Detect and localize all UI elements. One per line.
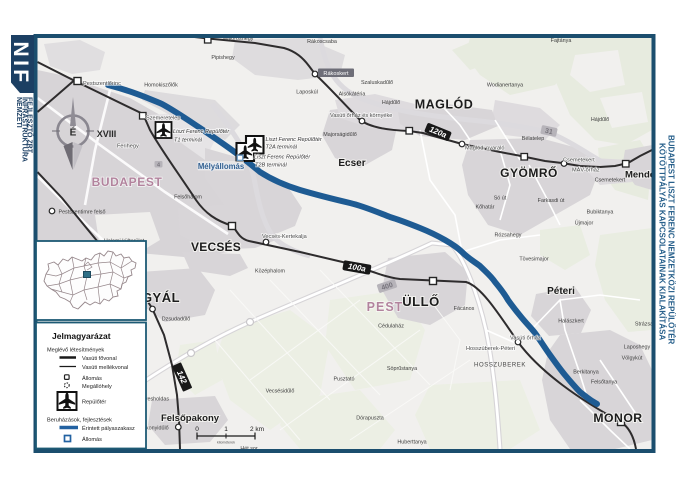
- svg-text:MÁV-őrház: MÁV-őrház: [572, 167, 600, 174]
- svg-text:Középhalom: Középhalom: [255, 269, 285, 275]
- svg-text:Só út: Só út: [494, 196, 507, 202]
- svg-text:Pusztató: Pusztató: [334, 377, 355, 383]
- svg-text:Repülőtér: Repülőtér: [82, 400, 106, 406]
- svg-text:HOSSZUBEREK: HOSSZUBEREK: [474, 363, 526, 369]
- svg-text:Csemetekert: Csemetekert: [595, 178, 626, 184]
- svg-text:Bélatelep: Bélatelep: [522, 136, 544, 142]
- svg-text:Pestszentlőrinc: Pestszentlőrinc: [83, 81, 121, 87]
- svg-text:Kőhatár: Kőhatár: [476, 205, 495, 211]
- svg-text:Felsőpakony: Felsőpakony: [161, 413, 220, 424]
- svg-text:Bubiktanya: Bubiktanya: [587, 210, 614, 216]
- svg-text:Wodianertanya: Wodianertanya: [487, 83, 523, 89]
- svg-text:Laposhegy: Laposhegy: [624, 345, 651, 351]
- svg-text:2 km: 2 km: [250, 426, 264, 433]
- svg-text:Mélyállomás: Mélyállomás: [198, 162, 245, 171]
- svg-text:FEJLESZTŐ ZRT.: FEJLESZTŐ ZRT.: [26, 97, 35, 154]
- svg-text:Söprűstanya: Söprűstanya: [387, 366, 417, 372]
- svg-text:Ferihegy: Ferihegy: [117, 144, 139, 150]
- svg-text:Szemeretelep: Szemeretelep: [146, 116, 181, 122]
- svg-text:NIF: NIF: [9, 42, 32, 86]
- svg-text:Dórapuszta: Dórapuszta: [356, 416, 384, 422]
- svg-text:Alsókátéria: Alsókátéria: [339, 92, 366, 98]
- svg-text:Liszt Ferenc Repülőtér: Liszt Ferenc Repülőtér: [173, 129, 230, 135]
- svg-text:Laposkúl: Laposkúl: [296, 90, 318, 96]
- svg-text:Péteri: Péteri: [547, 286, 575, 297]
- svg-text:kilométerek: kilométerek: [217, 441, 235, 445]
- svg-text:0: 0: [195, 426, 199, 433]
- svg-text:T2B terminál: T2B terminál: [255, 163, 287, 169]
- svg-text:Farkasdi út: Farkasdi út: [538, 198, 565, 204]
- svg-text:Liszt Ferenc Repülőtér: Liszt Ferenc Repülőtér: [266, 137, 323, 143]
- svg-text:Csemetekert: Csemetekert: [563, 158, 595, 164]
- svg-text:XVIII: XVIII: [97, 129, 117, 139]
- svg-text:Megállóhely: Megállóhely: [82, 384, 112, 390]
- svg-text:Fajtánya: Fajtánya: [551, 38, 572, 44]
- svg-text:Állomás: Állomás: [82, 436, 102, 443]
- svg-text:T2A terminál: T2A terminál: [266, 145, 298, 151]
- svg-text:Ecser: Ecser: [338, 158, 365, 169]
- svg-text:Vecsésidűlő: Vecsésidűlő: [266, 389, 295, 395]
- svg-text:Dzsudadűlő: Dzsudadűlő: [162, 317, 190, 323]
- svg-text:Vasúti őrház: Vasúti őrház: [510, 336, 541, 342]
- svg-text:BUDAPEST LISZT FERENC NEMZETKÖ: BUDAPEST LISZT FERENC NEMZETKÖZI REPÜLŐT…: [667, 135, 676, 345]
- svg-text:MONOR: MONOR: [593, 411, 642, 425]
- svg-text:Homokiszőlők: Homokiszőlők: [144, 83, 178, 89]
- svg-text:Vasúti fővonal: Vasúti fővonal: [82, 356, 117, 362]
- svg-text:PEST: PEST: [367, 300, 404, 314]
- svg-text:Pestszentimre felső: Pestszentimre felső: [58, 210, 105, 216]
- svg-text:Huberttanya: Huberttanya: [397, 440, 426, 446]
- svg-text:Tövesimajor: Tövesimajor: [519, 257, 549, 263]
- svg-text:Völgykút: Völgykút: [622, 356, 643, 362]
- svg-text:VECSÉS: VECSÉS: [191, 239, 241, 254]
- svg-text:MAGLÓD: MAGLÓD: [415, 97, 474, 112]
- svg-text:Fácános: Fácános: [454, 306, 475, 312]
- svg-text:Liszt Ferenc Repülőtér: Liszt Ferenc Repülőtér: [254, 155, 311, 161]
- svg-text:Vasúti mellékvonal: Vasúti mellékvonal: [82, 365, 128, 371]
- svg-text:ÜLLŐ: ÜLLŐ: [402, 294, 439, 309]
- svg-text:Mende: Mende: [625, 170, 655, 181]
- svg-text:BUDAPEST: BUDAPEST: [92, 175, 163, 189]
- svg-text:Érintett pályaszakasz: Érintett pályaszakasz: [82, 425, 135, 432]
- svg-text:Állomás: Állomás: [82, 375, 102, 382]
- svg-text:GYÁL: GYÁL: [142, 290, 180, 305]
- svg-text:Vecsés-Kertekalja: Vecsés-Kertekalja: [262, 234, 308, 240]
- svg-text:Beruházások, fejlesztések: Beruházások, fejlesztések: [47, 418, 112, 424]
- svg-text:Felsőtanya: Felsőtanya: [591, 380, 617, 386]
- svg-text:Jelmagyarázat: Jelmagyarázat: [52, 331, 111, 341]
- svg-text:Pipishegy: Pipishegy: [211, 55, 235, 61]
- svg-text:Hájdűlő: Hájdűlő: [591, 117, 609, 123]
- svg-text:Cédulaház: Cédulaház: [378, 324, 404, 330]
- svg-text:Maglódi nyaraló: Maglódi nyaraló: [465, 146, 505, 152]
- svg-text:Meglévő létesítmények: Meglévő létesítmények: [47, 348, 104, 354]
- svg-text:Rákoskert: Rákoskert: [323, 71, 349, 77]
- svg-text:KÖTÖTTPÁLYÁS KAPCSOLATAINAK KI: KÖTÖTTPÁLYÁS KAPCSOLATAINAK KIALAKÍTÁSA: [658, 143, 667, 340]
- svg-text:É: É: [70, 126, 77, 139]
- svg-text:Rákoscsaba: Rákoscsaba: [307, 39, 337, 45]
- svg-text:Újmajor: Újmajor: [575, 220, 594, 227]
- svg-text:Rózsahegy: Rózsahegy: [495, 233, 522, 239]
- svg-text:GYÖMRŐ: GYÖMRŐ: [500, 165, 558, 180]
- svg-text:Strázsa: Strázsa: [635, 322, 653, 328]
- svg-text:Vasúti őrház és környéke: Vasúti őrház és környéke: [330, 113, 392, 119]
- svg-text:1: 1: [224, 426, 228, 433]
- svg-text:Hájdűlő: Hájdűlő: [382, 100, 400, 106]
- svg-text:Berkitanya: Berkitanya: [573, 370, 598, 376]
- svg-text:Hosszúberek-Péteri: Hosszúberek-Péteri: [466, 346, 515, 352]
- svg-text:Felsőhalom: Felsőhalom: [174, 195, 202, 201]
- svg-text:Halászkert: Halászkert: [558, 319, 584, 325]
- svg-text:T1 terminál: T1 terminál: [174, 138, 203, 144]
- svg-text:Szaluskadűlő: Szaluskadűlő: [361, 80, 393, 86]
- svg-text:Majorságidűlő: Majorságidűlő: [323, 132, 357, 138]
